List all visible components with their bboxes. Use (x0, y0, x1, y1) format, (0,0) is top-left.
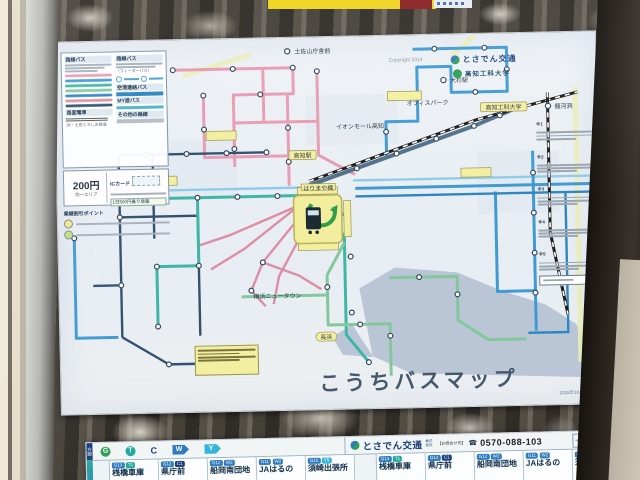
destination-name: JAはるの (259, 465, 303, 475)
legend-left-column: 路線バス 路面電車 JR・土佐くろしお鉄道 (64, 56, 113, 165)
legend-route-color-bar (65, 78, 112, 82)
fare-price: 200円 (66, 177, 106, 193)
wall-edge (0, 0, 26, 480)
destination-name: 県庁前 (428, 461, 472, 471)
sign-company-name: とさでん交通 (362, 437, 422, 452)
stop-code-badge: G11 (259, 458, 271, 465)
sign-company-suffix: 株式会社 (425, 440, 434, 448)
sticker-white-label (434, 0, 472, 8)
partner-logo-row: 高知工科大学 (453, 67, 510, 78)
legend-route-color-bar (65, 98, 112, 102)
route-letter-W: W (172, 444, 189, 454)
destination-cell: G12W2船岡南団地 (475, 451, 525, 480)
legend-airport-heading: 空港連絡バス (116, 83, 163, 91)
legend-route-color-bar (65, 73, 112, 77)
destination-name: 県庁前 (161, 468, 205, 478)
map-note-item: ※4 (538, 209, 595, 238)
tram-junction-icon (293, 187, 351, 251)
map-note-item: ※3 (537, 177, 594, 206)
destination-name: JAはるの (526, 459, 570, 469)
svg-text:オフィスパーク: オフィスパーク (407, 99, 449, 107)
legend-route-bars (65, 73, 113, 107)
kut-logo-icon (453, 69, 462, 78)
destination-cell: G11W2JAはるの (257, 456, 307, 480)
destination-name: 桟橋車庫 (379, 463, 423, 473)
phone-icon: ☎ (468, 438, 477, 446)
sign-contact-label: 【お問合せ先】 (437, 440, 465, 447)
destination-cell: G10Y5須崎出張所 (306, 455, 356, 480)
map-title: こうちバスマップ (319, 363, 519, 398)
legend-route-bus2-heading: 路線バス (115, 54, 162, 62)
legend-route-color-bar (65, 93, 112, 97)
sign-route-letters: GTCWY (92, 441, 344, 457)
map-note-item: ※1 (536, 111, 593, 140)
legend-rail-note: JR・土佐くろしお鉄道 (66, 122, 113, 128)
destination-cell: G11W2JAはるの (524, 450, 574, 480)
destination-cell: G12C1県庁前 (426, 452, 476, 480)
transfer-point-green-icon (64, 230, 73, 239)
destination-cell: G12C1県庁前 (159, 458, 209, 480)
ic-card-label: ICカード (110, 181, 130, 187)
sign-phone-number: 0570-088-103 (480, 436, 542, 447)
route-letter-T: T (125, 446, 135, 456)
destination-name: 桟橋車庫 (112, 469, 156, 479)
legend-route-color-bar (65, 88, 112, 92)
map-yellow-note-box (195, 344, 260, 375)
route-code-badge: W2 (272, 458, 283, 465)
legend-feeder-note: （フィーダーバス） (116, 68, 163, 74)
tosaden-logo-icon (451, 55, 460, 64)
svg-text:龍河洞: 龍河洞 (555, 102, 573, 110)
sticker-red-patch (400, 0, 432, 9)
legend-tram-heading: 路面電車 (66, 108, 113, 116)
day-pass-label: 1日500円乗り放題 (110, 197, 166, 206)
partner-name: 高知工科大学 (465, 67, 510, 78)
airport-bus-bar (116, 92, 163, 96)
map-legend: 路線バス 路面電車 JR・土佐くろしお鉄道 路線バス （フィーダーバス） 空港連… (60, 50, 168, 168)
legend-myyu-heading: MY遊バス (116, 97, 163, 105)
destination-name: 船岡南団地 (210, 467, 254, 477)
fare-info-box: 200円 均一エリア ICカード 1日500円乗り放題 (63, 168, 170, 206)
svg-text:横浜ニュータウン: 横浜ニュータウン (253, 292, 301, 301)
stop-code-badge: G11 (526, 452, 538, 459)
ic-card-info: ICカード 1日500円乗り放題 (110, 171, 167, 202)
ic-card-icon (132, 175, 160, 186)
copyright-text: Copyright 2014 (389, 57, 423, 64)
route-code-badge: W2 (539, 452, 550, 459)
transfer-heading: 乗継割引ポイント (64, 208, 170, 217)
map-note-item: ※2 (536, 144, 593, 173)
legend-route-bus-heading: 路線バス (64, 56, 111, 64)
destination-separator: 行先 (355, 454, 378, 480)
svg-text:長浜: 長浜 (320, 333, 332, 341)
feeder-line-symbol (116, 75, 163, 82)
publisher-logo-row: とさでん交通 (450, 53, 516, 65)
destination-cell: G13T1桟橋車庫 (110, 459, 160, 480)
myyu-bus-bar (117, 105, 164, 109)
other-routes-bar (117, 119, 164, 123)
publisher-name: とさでん交通 (462, 53, 516, 65)
sign-lead-cell (93, 461, 111, 480)
tosaden-logo-small-icon (350, 441, 359, 450)
bus-map-poster: 土佐山庁舎前イオンモール高知大杉駅オフィスパーク高知工科大学龍河洞高知駅はりまや… (53, 30, 604, 415)
route-letter-Y: Y (204, 444, 221, 454)
destination-name: 須崎出張所 (308, 464, 352, 474)
route-letter-G: G (100, 446, 110, 456)
destination-name: 船岡南団地 (477, 460, 521, 470)
legend-right-column: 路線バス （フィーダーバス） 空港連絡バス MY遊バス その他の路線 (115, 54, 164, 163)
bus-stop-display-case: 土佐山庁舎前イオンモール高知大杉駅オフィスパーク高知工科大学龍河洞高知駅はりまや… (0, 0, 640, 480)
destination-cell: G13T1桟橋車庫 (377, 453, 427, 480)
destination-cell: G12W2船岡南団地 (208, 457, 258, 480)
legend-other-heading: その他の路線 (117, 110, 164, 118)
fare-area-label: 均一エリア (66, 192, 106, 199)
flat-fare: 200円 均一エリア (66, 173, 108, 204)
legend-route-color-bar (65, 103, 112, 107)
legend-route-color-bar (65, 83, 112, 87)
svg-text:土佐山庁舎前: 土佐山庁舎前 (294, 47, 330, 56)
transfer-discount-block: 乗継割引ポイント (64, 208, 171, 239)
transfer-point-yellow-icon (64, 219, 73, 228)
route-letter-C: C (150, 445, 157, 455)
